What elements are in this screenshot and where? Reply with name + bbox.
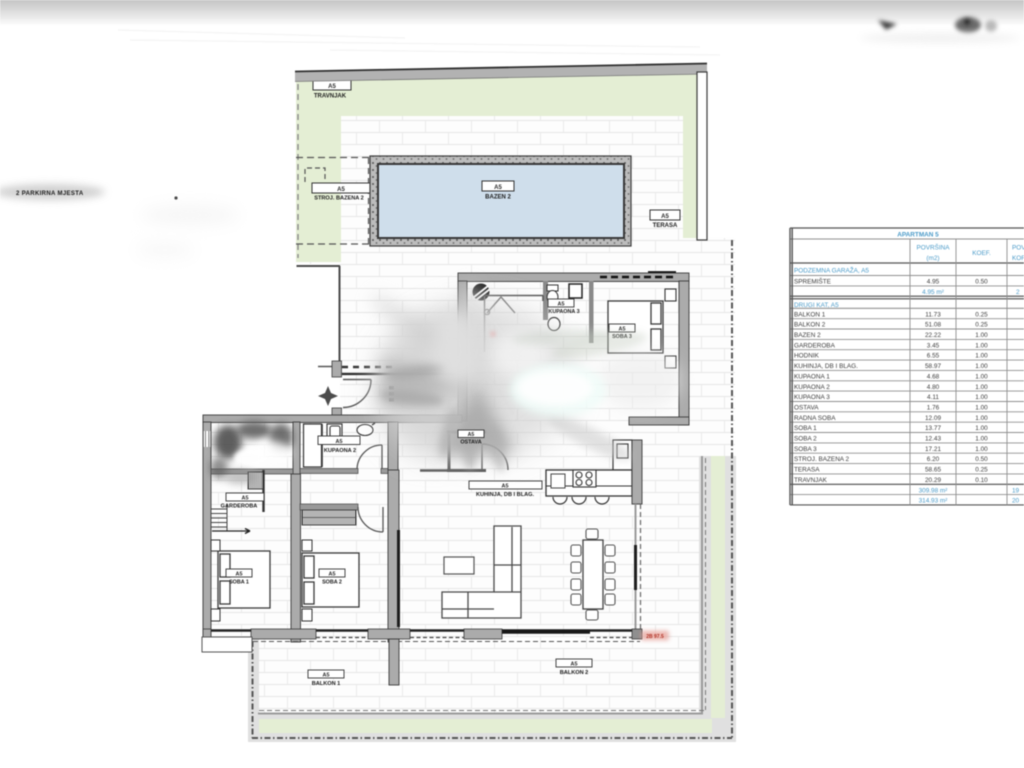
svg-text:HODNIK: HODNIK bbox=[794, 353, 820, 360]
svg-text:4.95 m²: 4.95 m² bbox=[922, 289, 944, 296]
svg-text:1.00: 1.00 bbox=[975, 405, 988, 412]
svg-text:13.77: 13.77 bbox=[925, 425, 941, 432]
svg-text:KUPAONA 3: KUPAONA 3 bbox=[548, 309, 579, 315]
svg-text:A5: A5 bbox=[661, 214, 669, 220]
svg-text:0.25: 0.25 bbox=[975, 467, 988, 474]
svg-text:SOBA 1: SOBA 1 bbox=[229, 580, 249, 586]
svg-text:SOBA 3: SOBA 3 bbox=[794, 446, 817, 453]
svg-text:11.73: 11.73 bbox=[925, 311, 941, 318]
svg-text:0.25: 0.25 bbox=[975, 311, 988, 318]
svg-text:19: 19 bbox=[1012, 487, 1020, 494]
svg-text:1.00: 1.00 bbox=[975, 436, 988, 443]
svg-text:A5: A5 bbox=[242, 496, 249, 502]
svg-text:2B 97.5: 2B 97.5 bbox=[646, 634, 664, 640]
svg-text:A5: A5 bbox=[336, 439, 343, 445]
svg-text:SPREMIŠTE: SPREMIŠTE bbox=[794, 277, 831, 286]
svg-text:SOBA 2: SOBA 2 bbox=[794, 436, 817, 443]
svg-text:GARDEROBA: GARDEROBA bbox=[794, 342, 836, 349]
svg-text:1.00: 1.00 bbox=[975, 384, 988, 391]
svg-text:A5: A5 bbox=[558, 302, 565, 308]
svg-text:PODZEMNA GARAŽA, A5: PODZEMNA GARAŽA, A5 bbox=[794, 265, 869, 274]
svg-text:3.45: 3.45 bbox=[927, 342, 940, 349]
svg-text:1.00: 1.00 bbox=[975, 363, 988, 370]
svg-text:SOBA 2: SOBA 2 bbox=[322, 580, 342, 586]
svg-text:1.00: 1.00 bbox=[975, 425, 988, 432]
svg-text:A5: A5 bbox=[494, 185, 502, 191]
svg-text:22.22: 22.22 bbox=[925, 332, 941, 339]
svg-text:0.10: 0.10 bbox=[975, 477, 988, 484]
svg-text:12.43: 12.43 bbox=[925, 436, 941, 443]
svg-text:BALKON 2: BALKON 2 bbox=[794, 322, 826, 329]
svg-text:A5: A5 bbox=[328, 84, 336, 90]
svg-text:BALKON 2: BALKON 2 bbox=[560, 670, 589, 676]
svg-text:KUPAONA 1: KUPAONA 1 bbox=[794, 373, 830, 380]
svg-text:4.11: 4.11 bbox=[927, 394, 939, 401]
svg-text:TERASA: TERASA bbox=[794, 467, 820, 474]
svg-text:58.65: 58.65 bbox=[925, 467, 941, 474]
svg-text:0.50: 0.50 bbox=[975, 279, 988, 286]
svg-text:DRUGI KAT, A5: DRUGI KAT, A5 bbox=[794, 302, 839, 309]
svg-text:POVR: POVR bbox=[1012, 245, 1024, 252]
svg-text:BAZEN 2: BAZEN 2 bbox=[794, 332, 821, 339]
svg-text:BAZEN 2: BAZEN 2 bbox=[485, 195, 511, 201]
svg-text:1.00: 1.00 bbox=[975, 373, 988, 380]
svg-text:OSTAVA: OSTAVA bbox=[460, 440, 481, 446]
svg-text:BALKON 1: BALKON 1 bbox=[794, 311, 826, 318]
svg-text:APARTMAN 5: APARTMAN 5 bbox=[897, 231, 939, 238]
svg-text:KUPAONA 2: KUPAONA 2 bbox=[794, 384, 830, 391]
svg-text:OSTAVA: OSTAVA bbox=[794, 405, 819, 412]
svg-text:51.08: 51.08 bbox=[925, 322, 941, 329]
svg-text:STROJ. BAZENA 2: STROJ. BAZENA 2 bbox=[794, 456, 849, 463]
svg-text:A5: A5 bbox=[329, 572, 336, 578]
svg-text:A5: A5 bbox=[619, 327, 626, 333]
svg-text:A5: A5 bbox=[323, 673, 330, 679]
svg-text:A5: A5 bbox=[468, 432, 475, 438]
svg-text:KUHINJA, DB I BLAG.: KUHINJA, DB I BLAG. bbox=[794, 363, 858, 370]
svg-text:6.20: 6.20 bbox=[927, 456, 940, 463]
svg-text:TRAVNJAK: TRAVNJAK bbox=[794, 477, 828, 484]
svg-text:1.00: 1.00 bbox=[975, 446, 988, 453]
svg-text:4.68: 4.68 bbox=[927, 373, 940, 380]
svg-text:(m2): (m2) bbox=[926, 255, 939, 262]
svg-text:1.00: 1.00 bbox=[975, 353, 988, 360]
svg-text:KUHINJA, DB I BLAG.: KUHINJA, DB I BLAG. bbox=[476, 492, 535, 498]
svg-text:KUPAONA 2: KUPAONA 2 bbox=[324, 448, 356, 454]
svg-text:20.29: 20.29 bbox=[925, 477, 941, 484]
svg-text:314.93 m²: 314.93 m² bbox=[919, 498, 948, 505]
svg-text:12.09: 12.09 bbox=[925, 415, 941, 422]
svg-text:RADNA SOBA: RADNA SOBA bbox=[794, 415, 836, 422]
svg-text:1.00: 1.00 bbox=[975, 332, 988, 339]
svg-text:2 PARKIRNA MJESTA: 2 PARKIRNA MJESTA bbox=[16, 191, 84, 197]
svg-text:1.00: 1.00 bbox=[975, 394, 988, 401]
svg-text:1.00: 1.00 bbox=[975, 415, 988, 422]
svg-text:58.97: 58.97 bbox=[925, 363, 941, 370]
svg-text:A5: A5 bbox=[236, 572, 243, 578]
svg-text:KOR: KOR bbox=[1012, 255, 1024, 262]
svg-text:KUPAONA 3: KUPAONA 3 bbox=[794, 394, 830, 401]
svg-text:TRAVNJAK: TRAVNJAK bbox=[314, 94, 347, 100]
svg-text:1.00: 1.00 bbox=[975, 342, 988, 349]
svg-text:TERASA: TERASA bbox=[653, 223, 678, 229]
svg-text:2: 2 bbox=[1016, 289, 1020, 296]
svg-text:4.80: 4.80 bbox=[927, 384, 940, 391]
svg-text:0.50: 0.50 bbox=[975, 456, 988, 463]
svg-text:309.98 m²: 309.98 m² bbox=[919, 487, 948, 494]
svg-text:0.25: 0.25 bbox=[975, 322, 988, 329]
svg-text:A5: A5 bbox=[571, 662, 578, 668]
svg-text:A5: A5 bbox=[502, 484, 509, 490]
svg-text:SOBA 1: SOBA 1 bbox=[794, 425, 817, 432]
svg-text:BALKON 1: BALKON 1 bbox=[312, 681, 341, 687]
svg-text:POVRŠINA: POVRŠINA bbox=[916, 243, 950, 252]
svg-text:20: 20 bbox=[1012, 498, 1020, 505]
svg-text:A5: A5 bbox=[337, 187, 345, 193]
svg-text:6.55: 6.55 bbox=[927, 353, 940, 360]
svg-text:1.76: 1.76 bbox=[927, 405, 940, 412]
svg-text:KOEF.: KOEF. bbox=[972, 250, 991, 257]
svg-text:4.95: 4.95 bbox=[927, 279, 940, 286]
svg-text:17.21: 17.21 bbox=[925, 446, 941, 453]
svg-text:STROJ. BAZENA 2: STROJ. BAZENA 2 bbox=[314, 196, 364, 202]
